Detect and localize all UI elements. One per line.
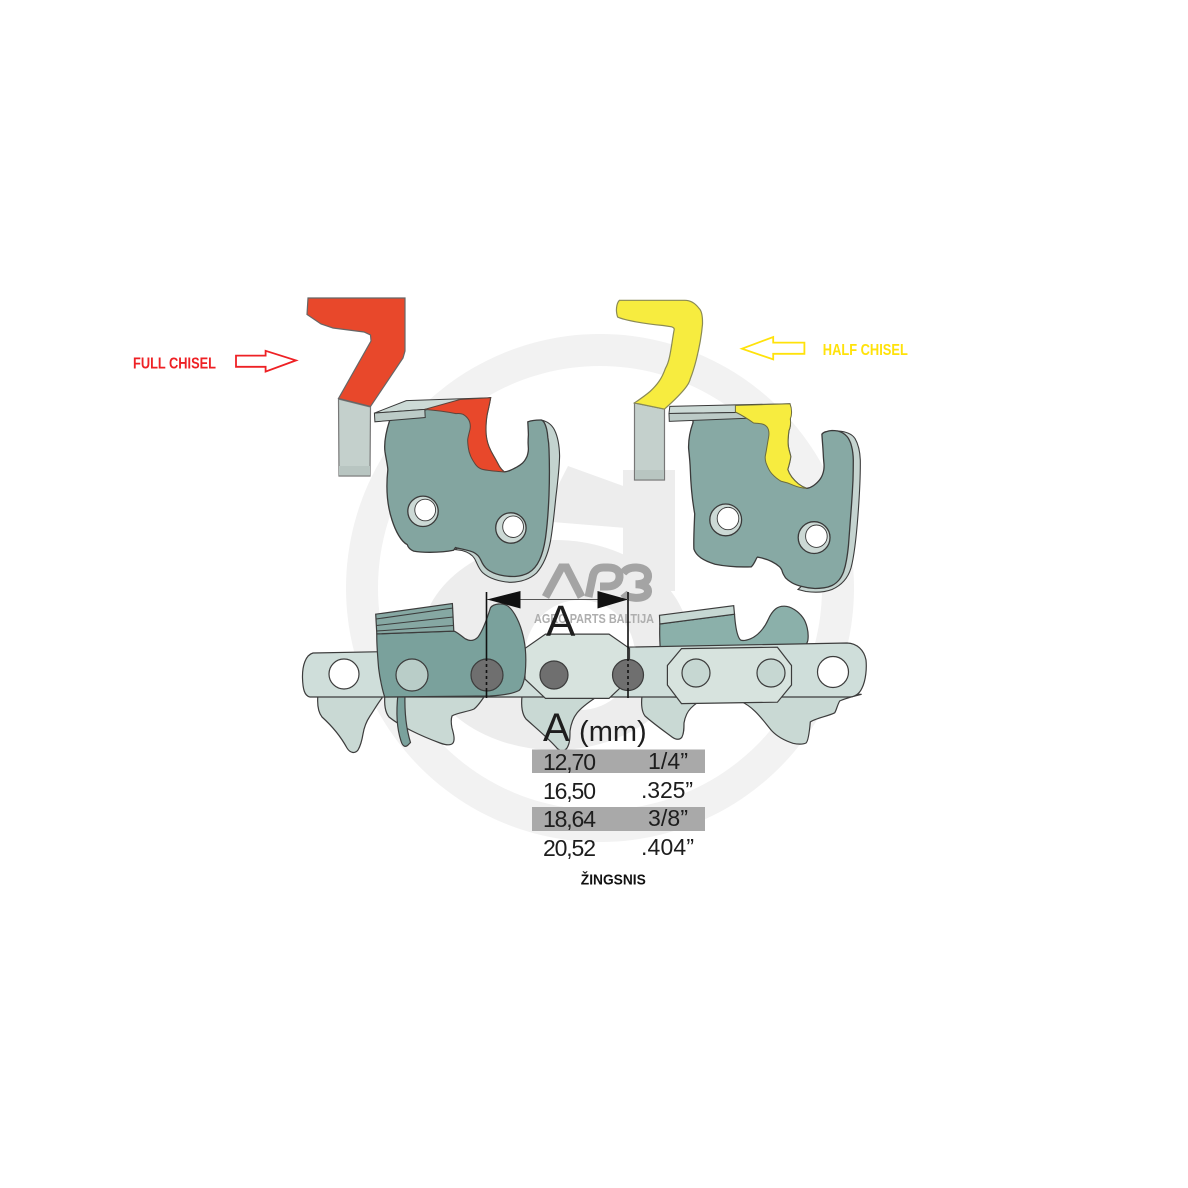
svg-text:20,52: 20,52 (543, 835, 596, 861)
svg-text:A: A (543, 706, 570, 750)
svg-text:3/8”: 3/8” (648, 805, 688, 831)
svg-text:18,64: 18,64 (543, 806, 596, 832)
svg-text:.325”: .325” (641, 777, 693, 803)
svg-text:A: A (546, 597, 576, 646)
svg-text:(mm): (mm) (571, 716, 647, 748)
svg-text:HALF CHISEL: HALF CHISEL (823, 342, 908, 359)
svg-text:16,50: 16,50 (543, 778, 596, 804)
svg-text:.404”: .404” (641, 834, 694, 860)
svg-text:FULL CHISEL: FULL CHISEL (133, 356, 216, 373)
svg-text:12,70: 12,70 (543, 749, 596, 775)
svg-text:1/4”: 1/4” (648, 748, 688, 774)
svg-text:ŽINGSNIS: ŽINGSNIS (581, 871, 646, 889)
